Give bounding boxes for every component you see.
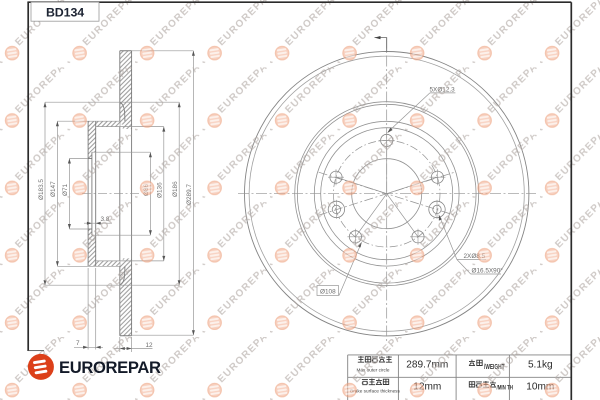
svg-text:EUROREPAR: EUROREPAR (59, 358, 161, 377)
svg-text:BD134: BD134 (46, 5, 84, 19)
